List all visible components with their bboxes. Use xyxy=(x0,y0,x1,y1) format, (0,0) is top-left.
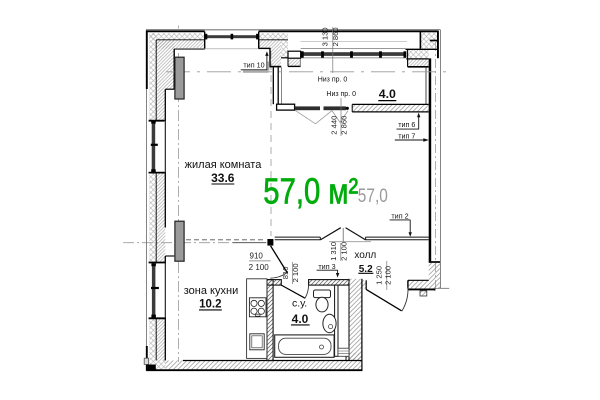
svg-text:4.0: 4.0 xyxy=(292,312,309,326)
svg-text:Низ пр. 0: Низ пр. 0 xyxy=(326,91,356,98)
svg-text:10.2: 10.2 xyxy=(199,298,221,310)
svg-text:жилая комната: жилая комната xyxy=(185,159,263,171)
svg-text:2 860: 2 860 xyxy=(340,116,349,135)
svg-text:тип 6: тип 6 xyxy=(398,120,415,129)
svg-text:2 100: 2 100 xyxy=(384,266,393,285)
svg-text:с.у.: с.у. xyxy=(292,297,307,309)
svg-text:тип 10: тип 10 xyxy=(243,60,264,69)
svg-text:тип 3: тип 3 xyxy=(318,262,335,271)
svg-text:33.6: 33.6 xyxy=(211,171,235,185)
svg-text:холл: холл xyxy=(354,250,376,261)
svg-text:57,0 м²: 57,0 м² xyxy=(263,170,358,211)
svg-text:зона кухни: зона кухни xyxy=(184,285,238,297)
svg-text:2 100: 2 100 xyxy=(339,242,348,261)
svg-text:4.0: 4.0 xyxy=(379,87,396,101)
svg-text:2 100: 2 100 xyxy=(249,263,270,272)
svg-text:Низ пр. 0: Низ пр. 0 xyxy=(318,76,348,83)
svg-text:810: 810 xyxy=(281,267,290,280)
svg-text:57,0: 57,0 xyxy=(358,185,388,207)
svg-text:1 250: 1 250 xyxy=(374,266,383,285)
svg-text:тип 2: тип 2 xyxy=(391,212,408,221)
svg-text:2 860: 2 860 xyxy=(331,27,340,46)
svg-text:тип 7: тип 7 xyxy=(398,131,415,140)
svg-text:3 130: 3 130 xyxy=(321,27,330,46)
svg-text:2 440: 2 440 xyxy=(329,116,338,135)
svg-text:910: 910 xyxy=(250,252,264,261)
svg-text:2 100: 2 100 xyxy=(291,263,300,282)
svg-text:1 310: 1 310 xyxy=(329,242,338,261)
